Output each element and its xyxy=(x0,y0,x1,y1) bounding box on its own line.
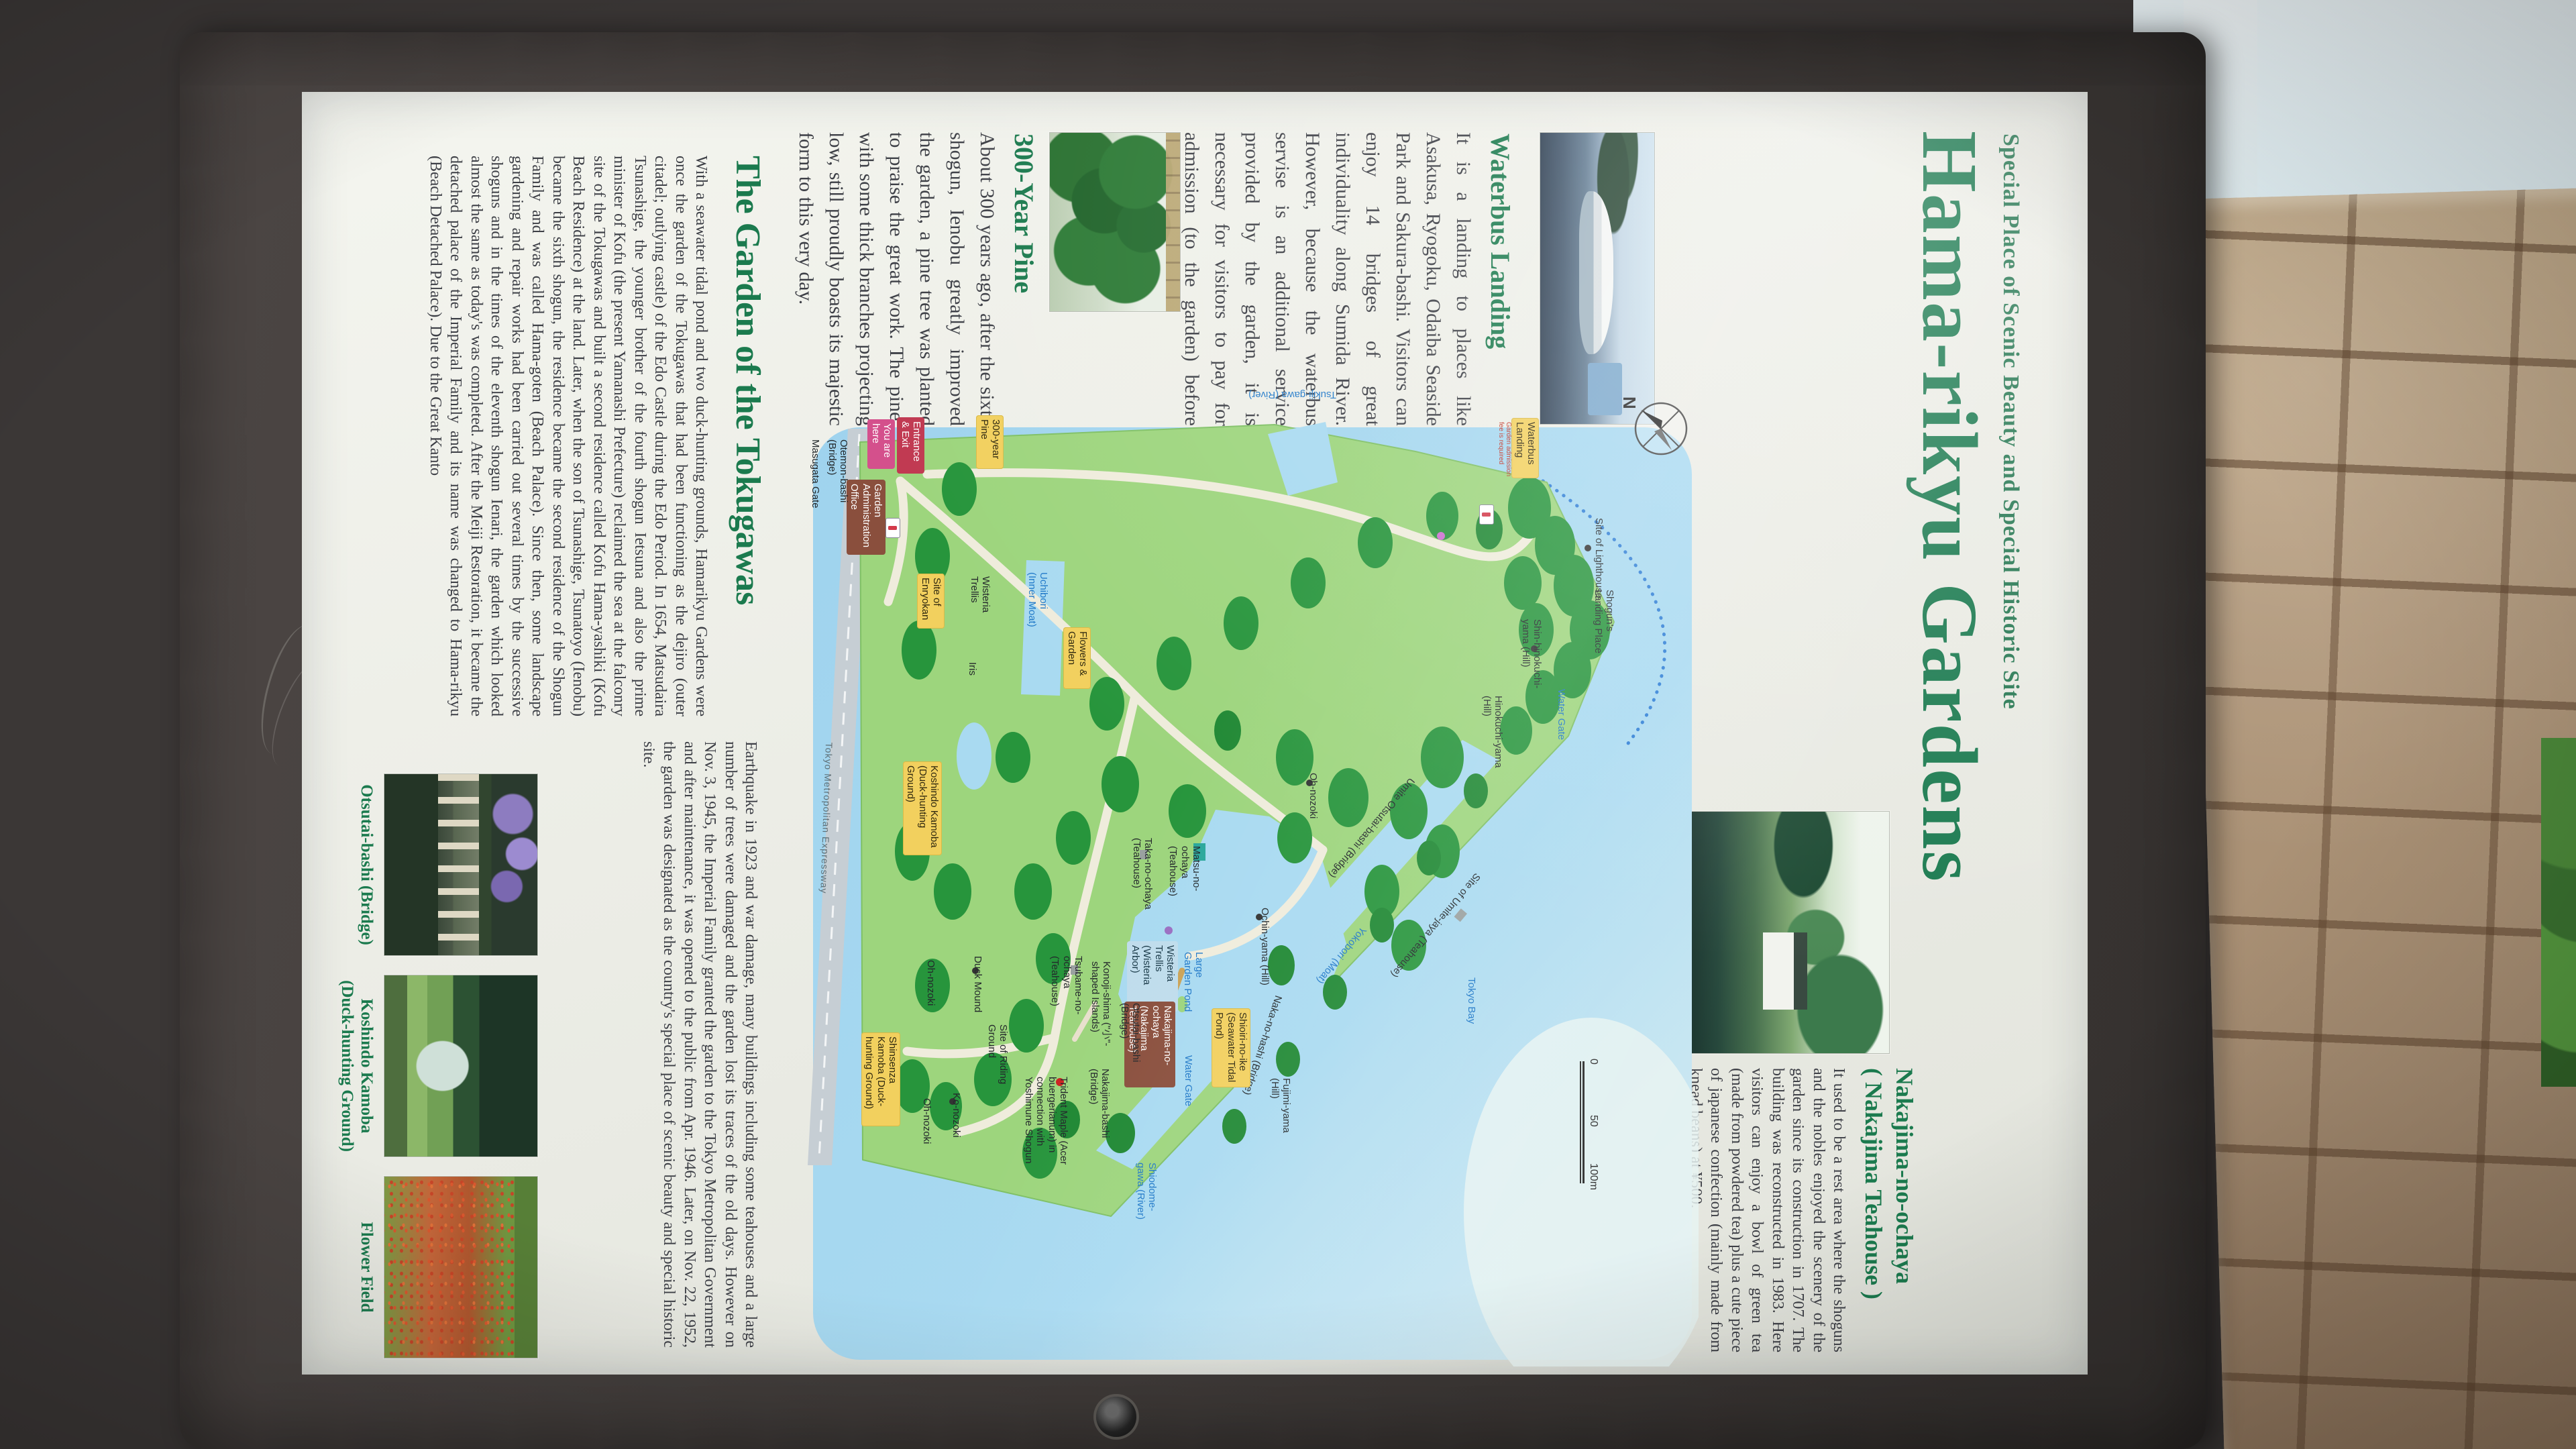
map-label: Tokyo Bay xyxy=(1466,977,1477,1024)
map-label: Uchibori (Inner Moat) xyxy=(1026,572,1049,636)
map-label: Otemon-bashi (Bridge) xyxy=(826,439,849,513)
photo-caption: Otsutai-bashi (Bridge) xyxy=(356,773,376,956)
map-label: Duck Mound xyxy=(972,956,983,1012)
map-label: Umite Otsutai-bashi (Bridge) xyxy=(1326,775,1417,880)
map-label: Yokobori (Moat) xyxy=(1314,924,1368,986)
scale-fifty: 50 xyxy=(1587,1115,1599,1127)
bridge-deck-shape xyxy=(438,774,480,955)
map-label: Garden Administration Office xyxy=(847,480,885,555)
information-board: Special Place of Scenic Beauty and Speci… xyxy=(302,92,2088,1375)
map-label: Flowers & Garden xyxy=(1063,627,1091,689)
toilet-icon xyxy=(1479,504,1494,525)
teahouse-building-shape xyxy=(1763,932,1808,1010)
board-subtitle: Special Place of Scenic Beauty and Speci… xyxy=(1998,133,2023,710)
map-label: Site of Riding Ground xyxy=(985,1024,1009,1095)
map-label: Shin-hinokuchi-yama (Hill) xyxy=(1519,619,1543,700)
stone-wall xyxy=(2189,188,2576,1449)
map-label: Matsu-no-ochaya (Teahouse) xyxy=(1167,846,1202,923)
compass-icon: N xyxy=(1611,380,1699,474)
map-label: Ochin-yama (Hill) xyxy=(1259,908,1271,985)
map-label: Tsukiji-gawa (River) xyxy=(1248,389,1336,400)
map-label: Oh-nozoki xyxy=(1307,773,1319,818)
waterbus-heading: Waterbus Landing xyxy=(1485,133,1516,349)
board-content-rotated: Special Place of Scenic Beauty and Speci… xyxy=(302,92,2088,1375)
board-title: Hama-rikyu Gardens xyxy=(1904,131,1995,883)
map-label: Shogun's Landing Place xyxy=(1592,590,1615,663)
flower-field-photo xyxy=(384,1176,538,1358)
map-label: Water Gate xyxy=(1556,689,1567,740)
duck-hunting-ground-photo xyxy=(384,975,538,1157)
map-label: Koshindo Kamoba (Duck-hunting Ground) xyxy=(903,761,942,855)
map-label: Oh-nozoki xyxy=(925,960,936,1006)
garden-history-heading: The Garden of the Tokugawas xyxy=(728,156,767,605)
map-label: Otsutai-bashi (Bridge) xyxy=(1118,1003,1142,1077)
map-label: You are here xyxy=(867,419,895,469)
map-label: Taka-no-ochaya (Teahouse) xyxy=(1130,838,1154,915)
nakajima-text: It used to be a rest area where the shog… xyxy=(1685,1068,1849,1352)
map-label: Tsubame-no-ochaya (Teahouse) xyxy=(1049,956,1084,1038)
map-label-layer: Waterbus LandingGarden admission fee is … xyxy=(800,380,1699,1366)
map-label: Waterbus LandingGarden admission fee is … xyxy=(1511,418,1539,478)
compass-north-label: N xyxy=(1619,396,1640,409)
map-label: Ko-nozoki xyxy=(951,1093,962,1138)
map-label: Masugata Gate xyxy=(810,439,821,508)
tree-foliage xyxy=(2541,738,2576,1087)
map-label: Konoji-shima ("小"-shaped Islands) xyxy=(1089,961,1112,1047)
map-label: Hinokuchi-yama (Hill) xyxy=(1481,696,1504,769)
map-label: Tokyo Metropolitan Expressway xyxy=(818,742,835,894)
map-label: Shiodome-gawa (River) xyxy=(1134,1163,1158,1224)
nakajima-heading-en: ( Nakajima Teahouse ) xyxy=(1860,1068,1888,1299)
garden-map: Waterbus LandingGarden admission fee is … xyxy=(800,380,1699,1366)
toilet-icon xyxy=(885,518,900,538)
nakajima-heading: Nakajima-no-ochaya xyxy=(1890,1068,1919,1284)
pine-photo xyxy=(1049,132,1181,312)
map-label: Wisteria Trellis xyxy=(968,576,991,630)
map-label: Water Gate xyxy=(1183,1055,1194,1106)
garden-history-text-1: With a seawater tidal pond and two duck-… xyxy=(425,156,711,716)
frame-bolt xyxy=(1096,1397,1136,1437)
photo-caption: Koshindo Kamoba (Duck-hunting Ground) xyxy=(337,975,376,1157)
otsutai-bashi-photo xyxy=(384,773,538,956)
map-label: Fujimi-yama (Hill) xyxy=(1269,1078,1292,1145)
nakajima-teahouse-photo xyxy=(1684,811,1890,1054)
boat-shape xyxy=(1579,191,1613,354)
scale-zero: 0 xyxy=(1587,1059,1599,1065)
garden-history-text-2: Earthquake in 1923 and war damage, many … xyxy=(638,741,761,1348)
map-label: Iris xyxy=(967,662,978,676)
photo-caption: Flower Field xyxy=(356,1176,376,1358)
map-label: Oh-nozoki xyxy=(921,1098,932,1144)
map-label: Site of Umite-jaya (Teahouse) xyxy=(1389,871,1483,980)
map-label: Site of Lighthouse xyxy=(1593,518,1605,598)
map-label: Nakajima-bashi (Bridge) xyxy=(1087,1069,1111,1142)
map-label: Entrance & Exit xyxy=(897,417,924,474)
map-label: Shioiri-no-ike (Seawater Tidal Pond) xyxy=(1212,1008,1250,1087)
map-label: Large Garden Pond xyxy=(1181,952,1205,1012)
photo-of-information-board: Special Place of Scenic Beauty and Speci… xyxy=(0,0,2576,1449)
map-label: Shinsenza Kamoba (Duck-hunting Ground) xyxy=(861,1032,900,1126)
map-label: Site of Enryokan xyxy=(917,574,945,629)
pine-heading: 300-Year Pine xyxy=(1008,133,1040,293)
map-label: Trident Maple (Acer buergerianum) in con… xyxy=(1022,1077,1069,1196)
map-label: 300-year Pine xyxy=(976,415,1004,469)
scale-hundred: 100m xyxy=(1587,1163,1599,1190)
